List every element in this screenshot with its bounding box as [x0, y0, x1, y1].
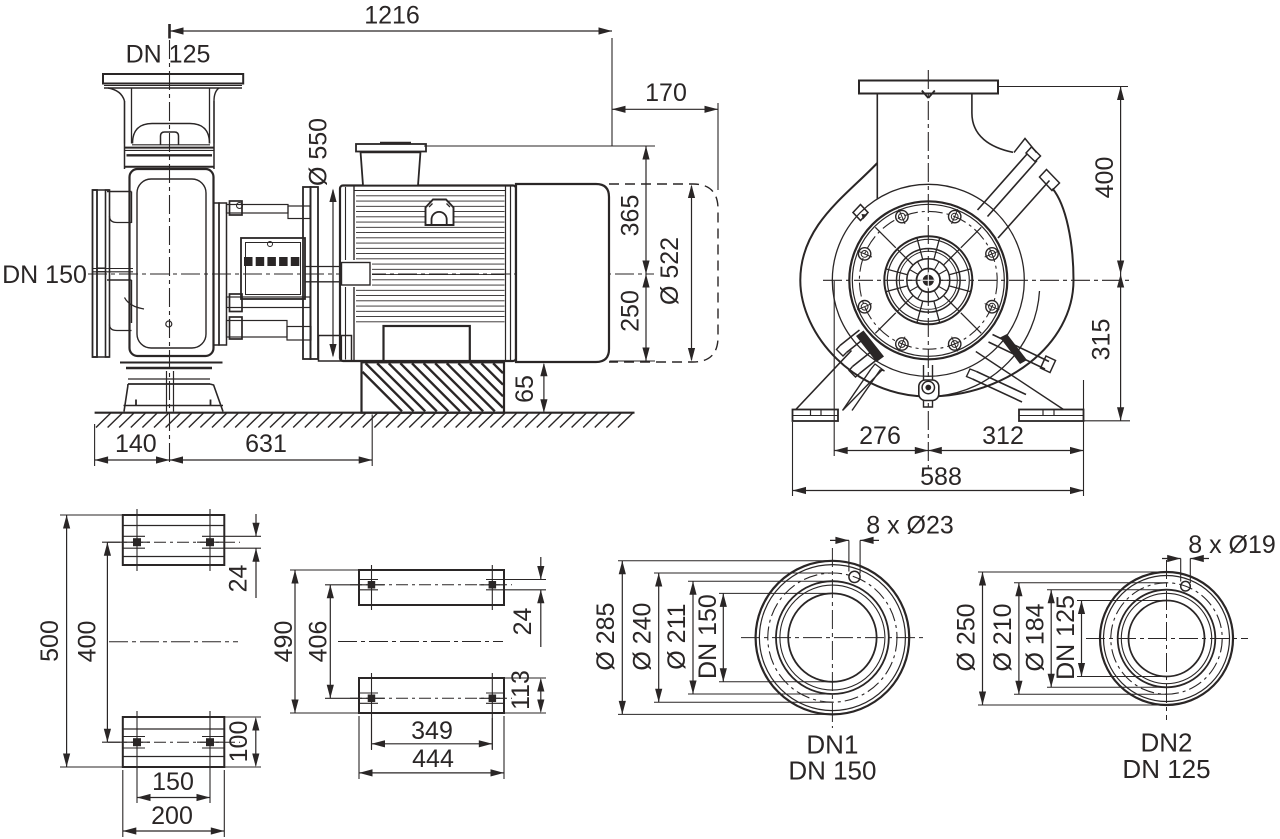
svg-text:Ø 550: Ø 550	[304, 118, 332, 186]
svg-text:170: 170	[645, 79, 687, 107]
svg-text:406: 406	[304, 621, 332, 663]
svg-text:200: 200	[151, 802, 193, 830]
svg-text:Ø 210: Ø 210	[989, 603, 1017, 671]
svg-text:588: 588	[920, 463, 962, 491]
svg-text:Ø 184: Ø 184	[1021, 603, 1049, 671]
svg-text:150: 150	[152, 768, 194, 796]
svg-text:Ø 285: Ø 285	[592, 603, 620, 671]
svg-text:444: 444	[412, 745, 454, 773]
svg-text:DN 125: DN 125	[126, 40, 211, 68]
svg-text:113: 113	[507, 670, 535, 710]
svg-text:65: 65	[511, 375, 539, 403]
svg-text:349: 349	[411, 717, 453, 745]
svg-text:100: 100	[225, 721, 253, 763]
svg-text:Ø 522: Ø 522	[656, 237, 684, 305]
svg-text:DN 150: DN 150	[2, 261, 87, 289]
svg-text:24: 24	[509, 608, 537, 636]
svg-text:312: 312	[982, 422, 1024, 450]
svg-text:500: 500	[36, 620, 64, 662]
svg-text:Ø 211: Ø 211	[663, 603, 691, 669]
svg-text:DN 150: DN 150	[788, 756, 876, 786]
svg-text:365: 365	[616, 195, 644, 237]
svg-text:140: 140	[115, 430, 157, 458]
svg-text:400: 400	[1091, 157, 1119, 199]
svg-text:DN 150: DN 150	[694, 594, 722, 679]
svg-text:DN 125: DN 125	[1122, 754, 1210, 784]
svg-text:490: 490	[270, 621, 298, 663]
svg-text:DN2: DN2	[1140, 727, 1192, 757]
svg-text:276: 276	[859, 422, 901, 450]
svg-text:631: 631	[245, 430, 287, 458]
svg-text:8 x Ø23: 8 x Ø23	[866, 511, 954, 539]
svg-text:Ø 250: Ø 250	[952, 603, 980, 671]
svg-text:400: 400	[73, 621, 101, 663]
svg-text:Ø 240: Ø 240	[628, 603, 656, 671]
svg-text:250: 250	[616, 290, 644, 332]
svg-text:1216: 1216	[364, 1, 420, 29]
svg-text:8 x Ø19: 8 x Ø19	[1188, 531, 1276, 559]
svg-text:DN 125: DN 125	[1052, 595, 1080, 680]
svg-text:315: 315	[1087, 319, 1115, 361]
svg-text:24: 24	[224, 565, 252, 593]
